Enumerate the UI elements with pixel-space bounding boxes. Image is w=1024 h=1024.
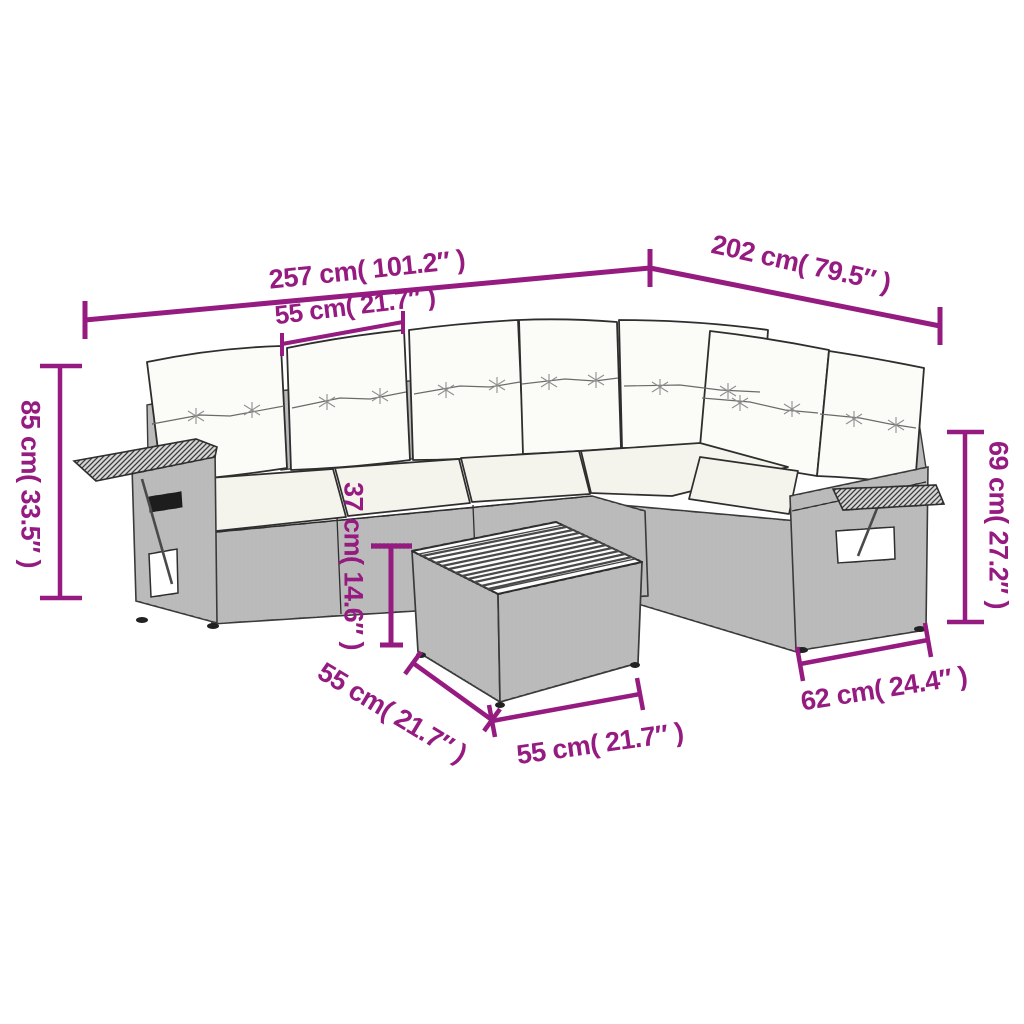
- sofa-set-illustration: [0, 0, 1024, 1024]
- dim-backrest-height: 69 cm( 27.2″ ): [983, 441, 1014, 609]
- coffee-table: [412, 522, 642, 708]
- dim-overall-height: 85 cm( 33.5″ ): [15, 400, 46, 568]
- left-armrest: [74, 439, 219, 629]
- right-armrest: [790, 467, 944, 653]
- dimension-diagram: 257 cm( 101.2″ ) 202 cm( 79.5″ ) 55 cm( …: [0, 0, 1024, 1024]
- dim-seat-height: 37 cm( 14.6″ ): [338, 482, 369, 650]
